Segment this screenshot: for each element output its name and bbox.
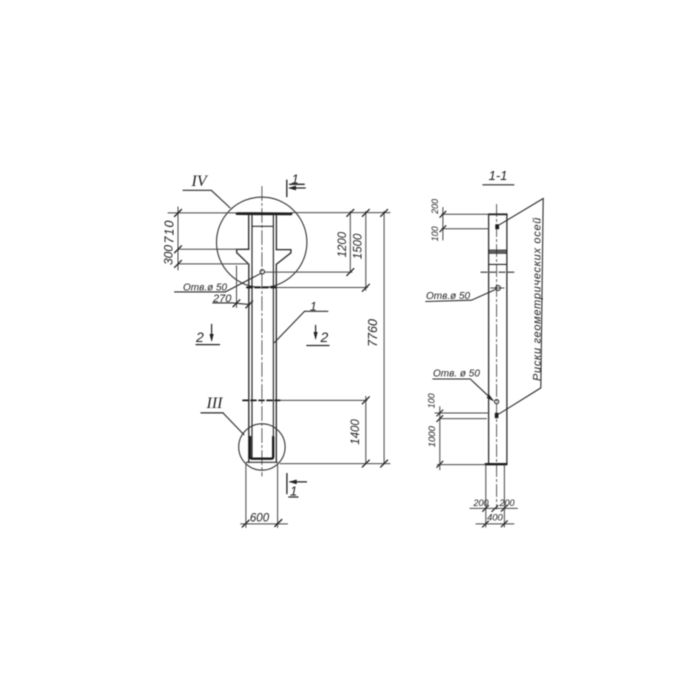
svg-text:200: 200 bbox=[498, 498, 514, 508]
svg-text:200: 200 bbox=[472, 498, 488, 508]
svg-text:300: 300 bbox=[162, 245, 176, 265]
svg-text:2: 2 bbox=[195, 329, 204, 345]
svg-text:100: 100 bbox=[427, 393, 437, 408]
svg-text:1500: 1500 bbox=[352, 233, 364, 259]
svg-text:1000: 1000 bbox=[427, 425, 438, 447]
svg-text:III: III bbox=[206, 395, 224, 412]
svg-text:Отв. ø 50: Отв. ø 50 bbox=[433, 369, 480, 380]
svg-text:200: 200 bbox=[430, 199, 440, 215]
svg-text:1400: 1400 bbox=[350, 419, 362, 445]
svg-text:100: 100 bbox=[430, 226, 440, 241]
svg-text:1-1: 1-1 bbox=[489, 168, 508, 183]
svg-text:1: 1 bbox=[292, 172, 299, 187]
svg-text:7760: 7760 bbox=[366, 319, 380, 347]
svg-text:IV: IV bbox=[191, 173, 209, 190]
svg-text:Риски геометрических осей: Риски геометрических осей bbox=[531, 217, 543, 381]
svg-text:400: 400 bbox=[487, 512, 504, 523]
svg-text:600: 600 bbox=[250, 513, 270, 525]
svg-text:1200: 1200 bbox=[337, 231, 349, 257]
svg-text:2: 2 bbox=[320, 329, 329, 345]
svg-text:710: 710 bbox=[163, 220, 177, 244]
svg-text:1: 1 bbox=[290, 484, 297, 499]
